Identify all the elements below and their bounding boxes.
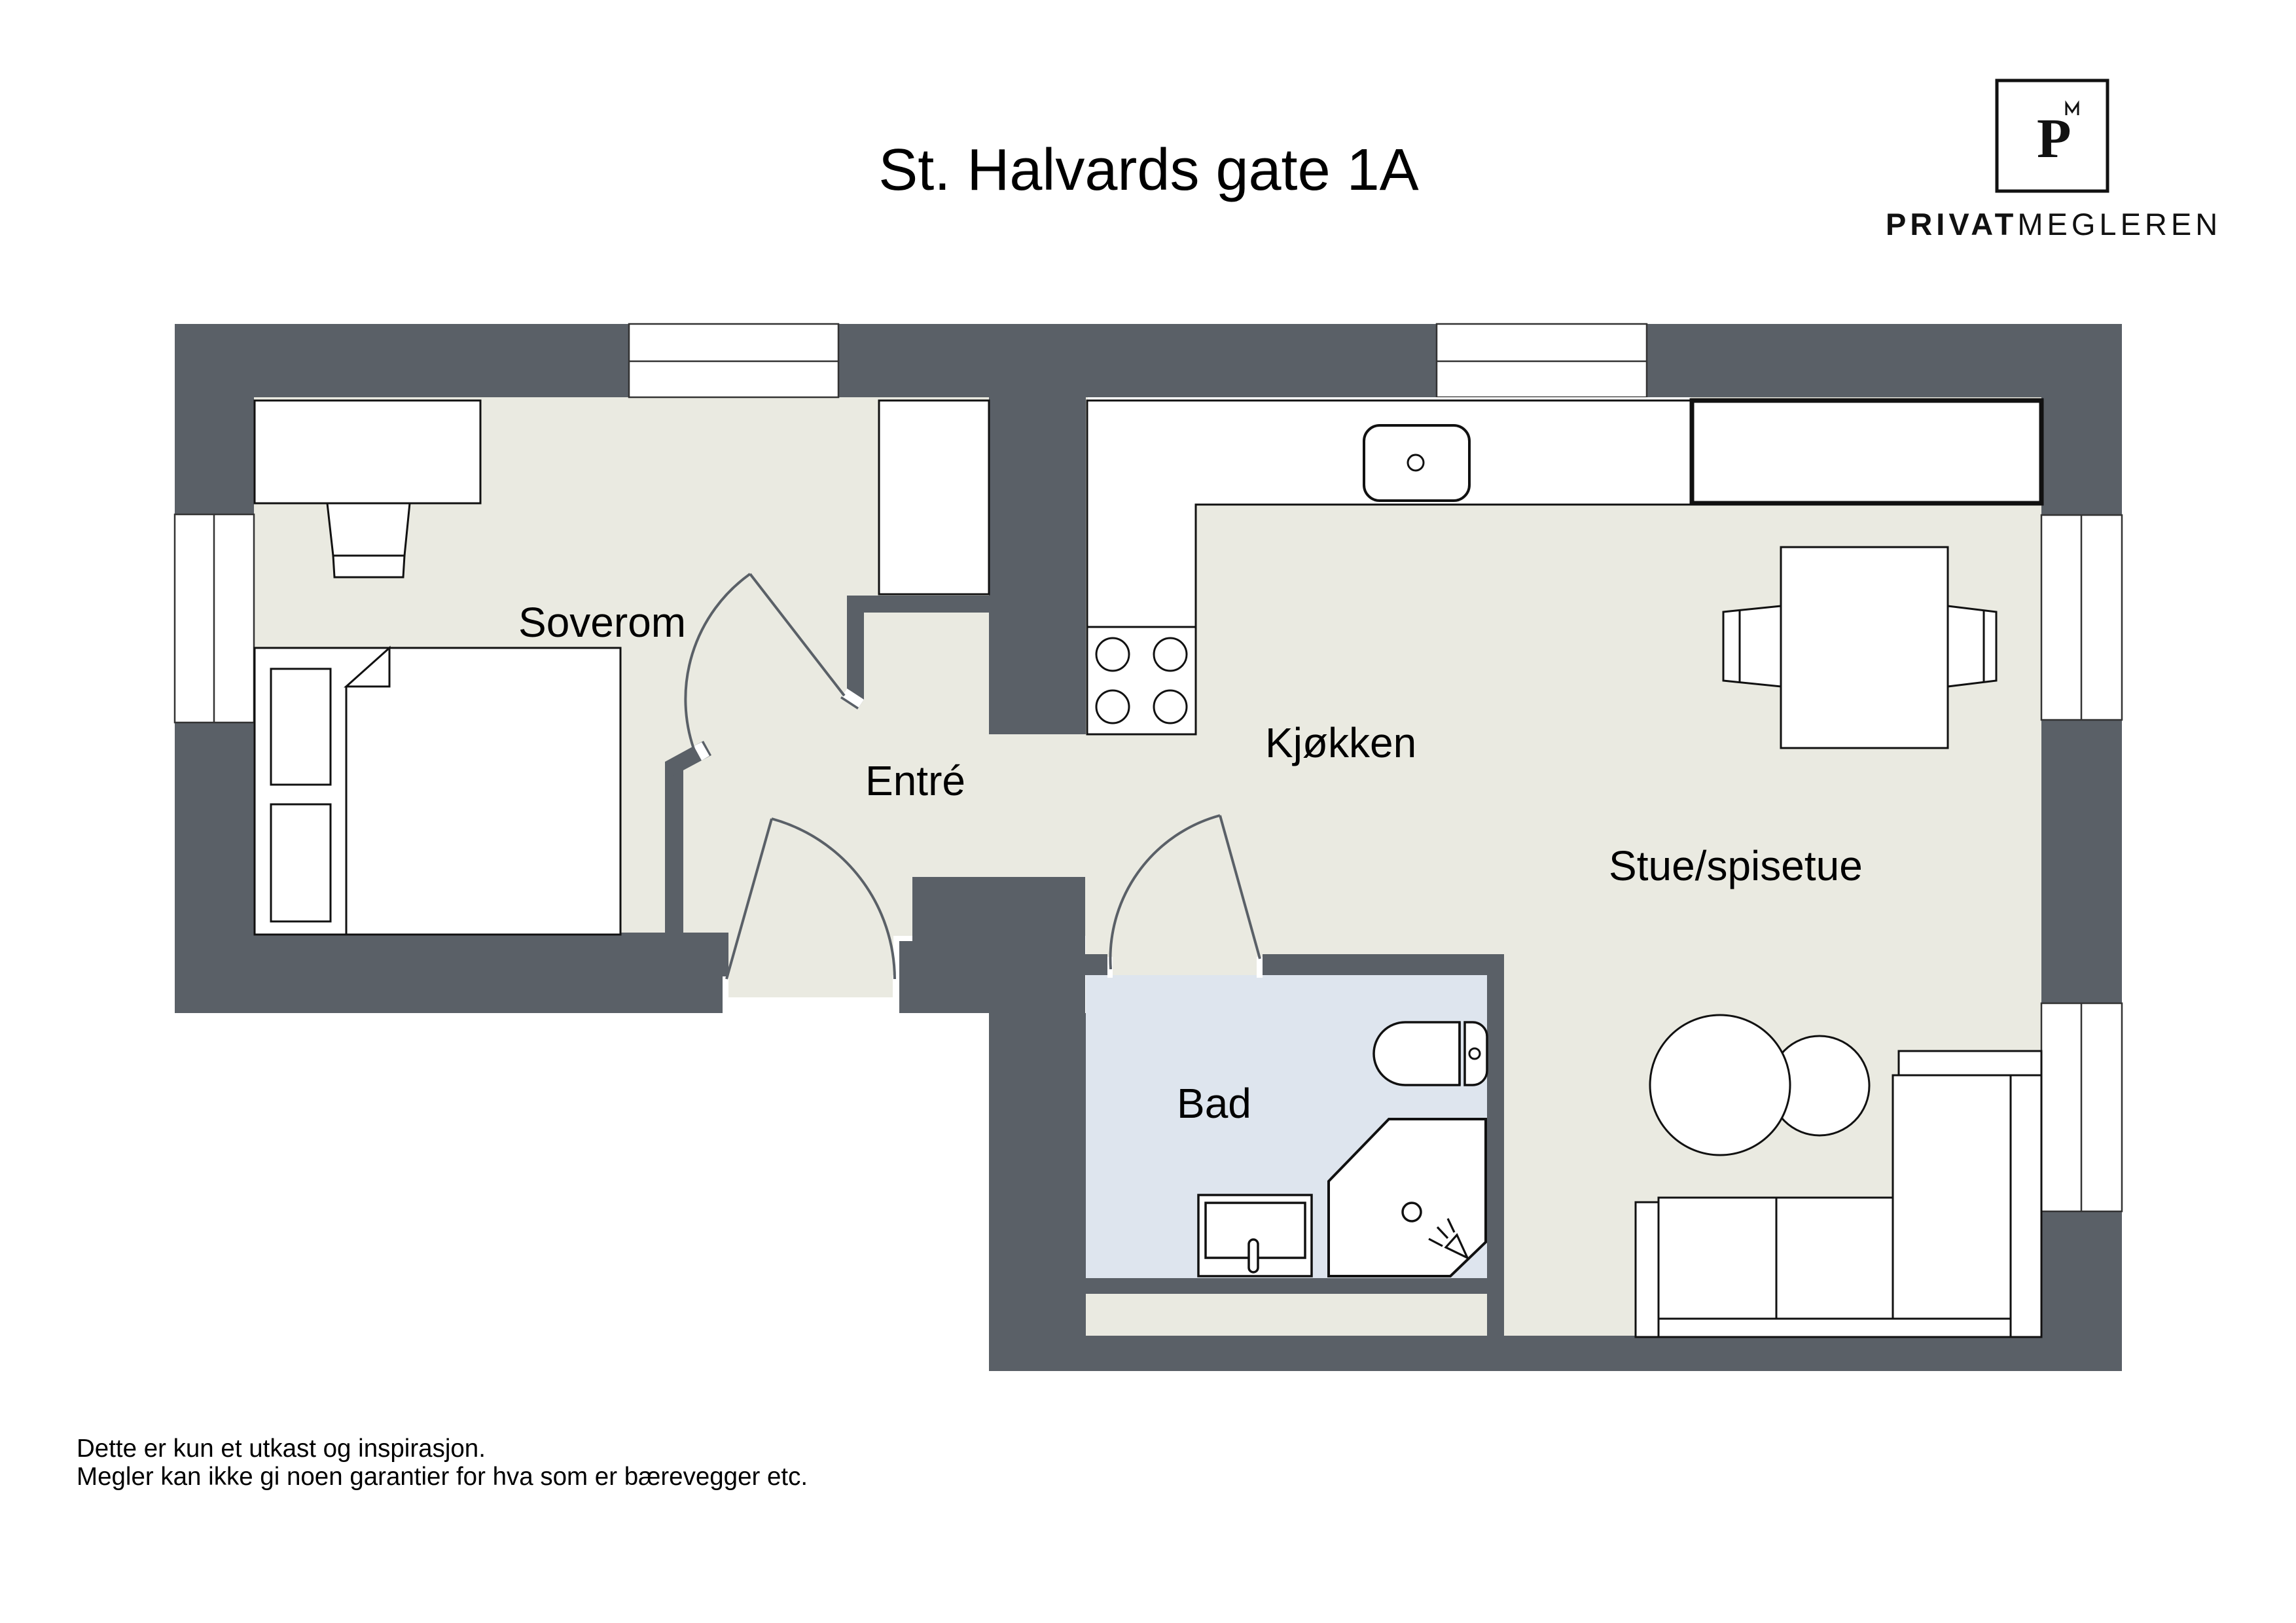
svg-text:Kjøkken: Kjøkken [1265, 719, 1416, 766]
svg-text:PRIVATMEGLEREN: PRIVATMEGLEREN [1886, 207, 2221, 241]
svg-text:P: P [2037, 107, 2072, 169]
svg-text:Soverom: Soverom [518, 599, 686, 646]
svg-text:Megler kan ikke gi noen garant: Megler kan ikke gi noen garantier for hv… [77, 1463, 808, 1491]
svg-text:Stue/spisetue: Stue/spisetue [1609, 842, 1863, 889]
svg-text:Entré: Entré [865, 757, 965, 804]
svg-text:Bad: Bad [1177, 1080, 1251, 1127]
svg-text:St. Halvards gate 1A: St. Halvards gate 1A [878, 137, 1418, 203]
svg-text:Dette er kun et utkast og insp: Dette er kun et utkast og inspirasjon. [77, 1435, 486, 1463]
